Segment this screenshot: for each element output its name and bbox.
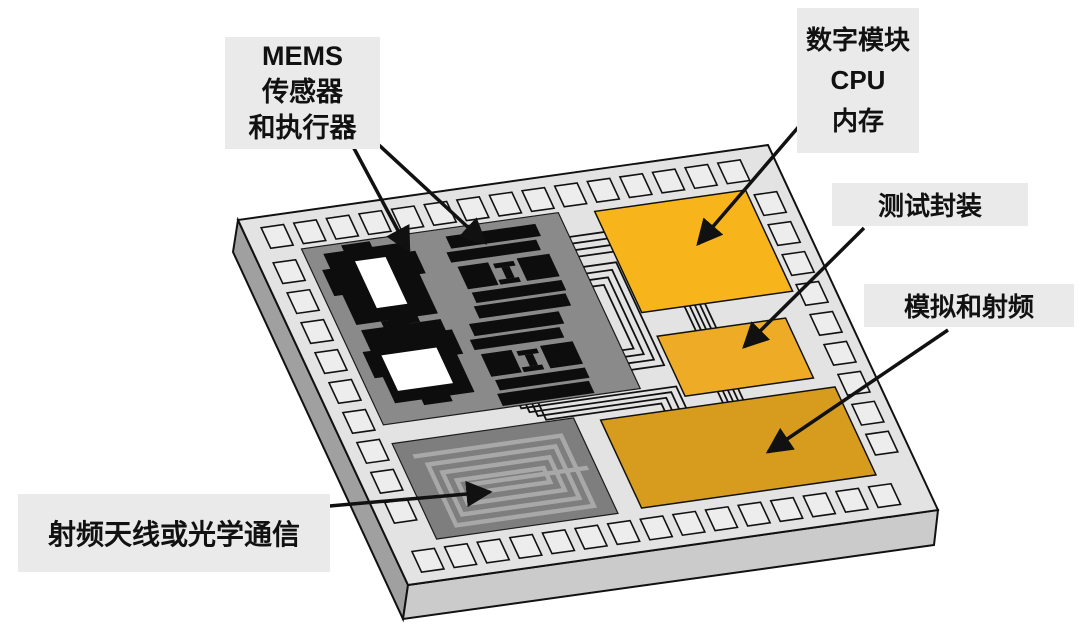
test-package-label: 测试封装 <box>832 183 1028 226</box>
mems-label-line1: MEMS <box>262 39 343 75</box>
digital-label-line1: 数字模块 <box>806 20 910 60</box>
digital-label: 数字模块 CPU 内存 <box>797 8 919 153</box>
mems-label-line2: 传感器 <box>262 75 343 111</box>
mems-label: MEMS 传感器 和执行器 <box>225 37 380 149</box>
analog-rf-label: 模拟和射频 <box>864 284 1074 327</box>
digital-label-line3: 内存 <box>832 101 884 141</box>
mems-label-line3: 和执行器 <box>249 111 357 147</box>
test-package-label-text: 测试封装 <box>878 186 982 223</box>
antenna-label-text: 射频天线或光学通信 <box>48 513 300 553</box>
digital-label-line2: CPU <box>831 60 886 100</box>
antenna-label: 射频天线或光学通信 <box>18 494 330 572</box>
analog-rf-label-text: 模拟和射频 <box>904 287 1034 324</box>
diagram-canvas: MEMS 传感器 和执行器 数字模块 CPU 内存 测试封装 模拟和射频 射频天… <box>0 0 1080 631</box>
